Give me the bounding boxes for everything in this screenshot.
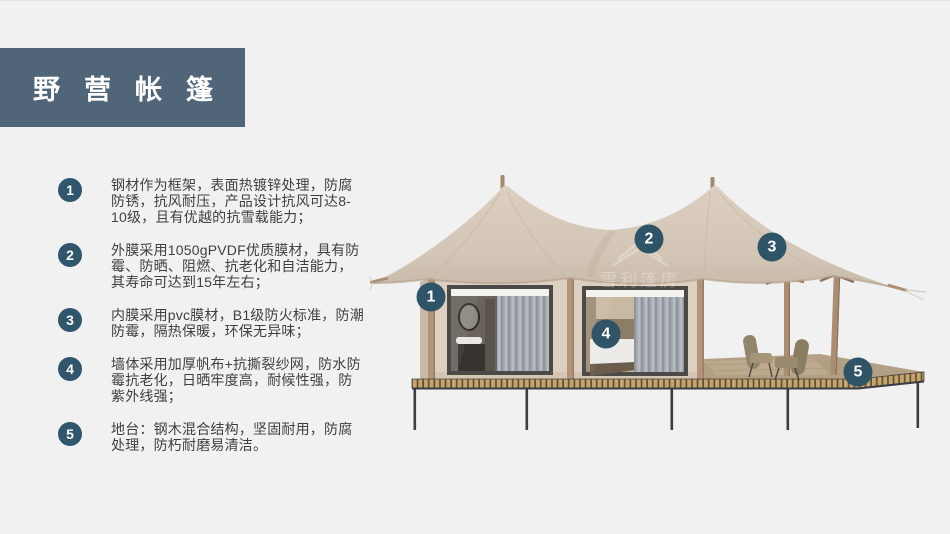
page-title-block: 野营帐篷 [0, 48, 245, 127]
callout-badge-4: 4 [592, 320, 621, 349]
callout-badge-2: 2 [635, 225, 664, 254]
feature-item-2: 2 外膜采用1050gPVDF优质膜材，具有防霉、防晒、阻燃、抗老化和自洁能力，… [58, 242, 390, 290]
number-badge-1: 1 [58, 178, 82, 202]
svg-text:1: 1 [427, 289, 436, 306]
number-badge-3: 3 [58, 308, 82, 332]
number-badge-2: 2 [58, 243, 82, 267]
callout-badge-1: 1 [417, 283, 446, 312]
window-left [447, 285, 553, 375]
watermark-text: 雪利篷房 [600, 271, 680, 290]
svg-text:5: 5 [854, 364, 863, 381]
number-badge-5: 5 [58, 422, 82, 446]
feature-text-1: 钢材作为框架，表面热镀锌处理，防腐防锈，抗风耐压，产品设计抗风可达8-10级，且… [111, 177, 365, 225]
callout-badge-5: 5 [844, 358, 873, 387]
feature-item-4: 4 墙体采用加厚帆布+抗撕裂纱网，防水防霉抗老化，日晒牢度高，耐候性强，防紫外线… [58, 356, 390, 404]
slide: 野营帐篷 1 钢材作为框架，表面热镀锌处理，防腐防锈，抗风耐压，产品设计抗风可达… [0, 0, 950, 534]
feature-text-5: 地台：钢木混合结构，坚固耐用，防腐处理，防朽耐磨易清洁。 [111, 421, 365, 453]
feature-list: 1 钢材作为框架，表面热镀锌处理，防腐防锈，抗风耐压，产品设计抗风可达8-10级… [58, 177, 390, 470]
feature-text-3: 内膜采用pvc膜材，B1级防火标准，防潮防霉，隔热保暖，环保无异味； [111, 307, 365, 339]
feature-text-4: 墙体采用加厚帆布+抗撕裂纱网，防水防霉抗老化，日晒牢度高，耐候性强，防紫外线强； [111, 356, 365, 404]
right-spreader-bar [887, 284, 907, 292]
page-title: 野营帐篷 [33, 68, 237, 107]
number-badge-4: 4 [58, 357, 82, 381]
feature-item-3: 3 内膜采用pvc膜材，B1级防火标准，防潮防霉，隔热保暖，环保无异味； [58, 307, 390, 339]
feature-text-2: 外膜采用1050gPVDF优质膜材，具有防霉、防晒、阻燃、抗老化和自洁能力，其寿… [111, 242, 365, 290]
feature-item-5: 5 地台：钢木混合结构，坚固耐用，防腐处理，防朽耐磨易清洁。 [58, 421, 390, 453]
svg-text:2: 2 [645, 231, 654, 248]
svg-text:4: 4 [602, 326, 611, 343]
feature-item-1: 1 钢材作为框架，表面热镀锌处理，防腐防锈，抗风耐压，产品设计抗风可达8-10级… [58, 177, 390, 225]
callout-badge-3: 3 [758, 233, 787, 262]
svg-text:3: 3 [768, 239, 777, 256]
tent-illustration: 雪利篷房 1 2 3 4 5 [368, 151, 948, 471]
